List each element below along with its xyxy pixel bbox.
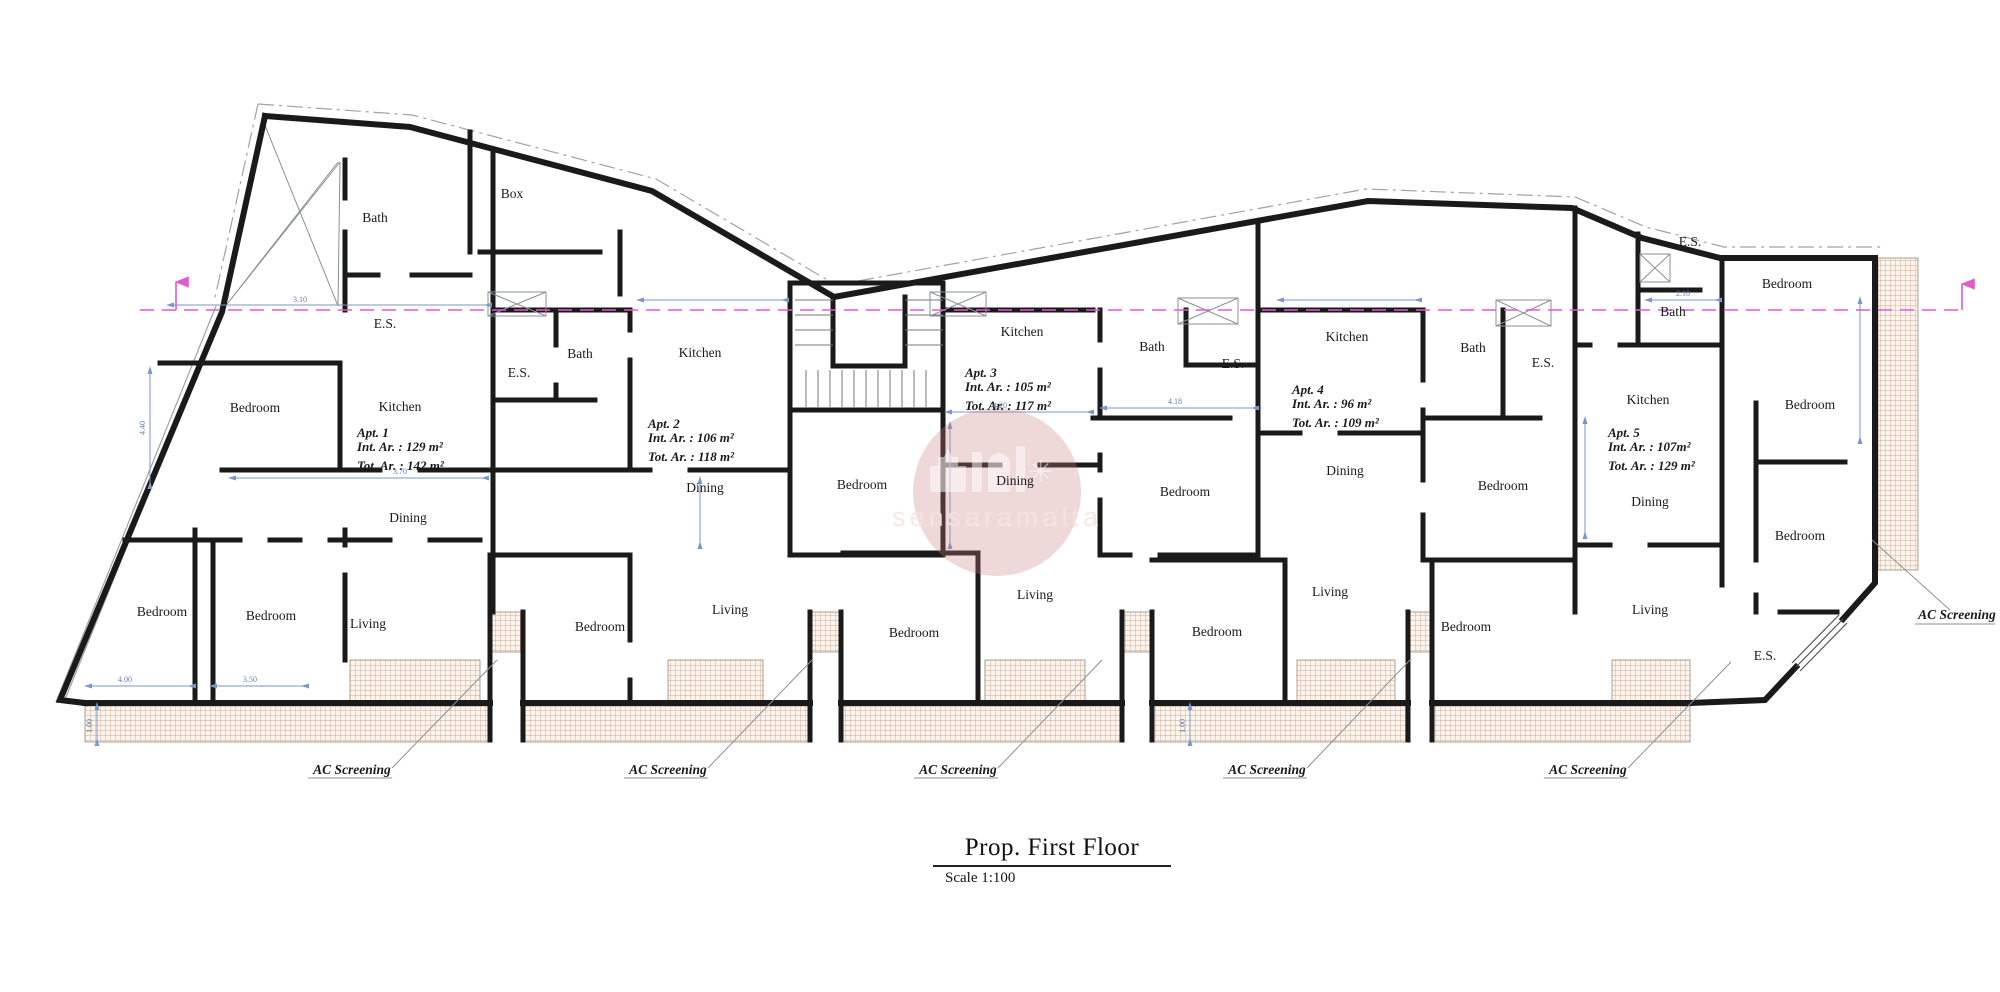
room-label: E.S. <box>1222 356 1245 371</box>
room-label: Living <box>1632 602 1668 617</box>
room-label: Dining <box>389 510 427 525</box>
room-label: Bedroom <box>1160 484 1211 499</box>
room-label: Bedroom <box>1785 397 1836 412</box>
room-label: Bath <box>567 346 593 361</box>
room-label: Bath <box>362 210 388 225</box>
room-label: Dining <box>996 473 1034 488</box>
apartment-info: Apt. 3Int. Ar. : 105 m²Tot. Ar. : 117 m² <box>964 365 1052 413</box>
shaft-x-boxes <box>488 254 1670 326</box>
dimension-label: 3.10 <box>293 295 307 304</box>
apartment-info: Apt. 4Int. Ar. : 96 m²Tot. Ar. : 109 m² <box>1291 382 1380 430</box>
room-label: Bath <box>1660 304 1686 319</box>
room-label: Kitchen <box>1326 329 1369 344</box>
ac-screening-label: AC Screening <box>1548 762 1627 777</box>
room-label: E.S. <box>374 316 397 331</box>
dimension-label: 2.10 <box>1676 289 1690 298</box>
dimension-labels: 3.104.204.183.704.003.502.104.401.001.00 <box>85 289 1690 733</box>
room-label: E.S. <box>1754 648 1777 663</box>
stair-treads <box>795 300 943 407</box>
dimension-label: 1.00 <box>1178 719 1187 733</box>
ac-screening-label: AC Screening <box>628 762 707 777</box>
watermark-text: sensaramalta <box>892 502 1102 532</box>
section-line <box>140 282 1966 310</box>
dimension-label: 3.70 <box>393 467 407 476</box>
room-label: Bedroom <box>837 477 888 492</box>
room-label: E.S. <box>1532 355 1555 370</box>
dimension-label: 4.20 <box>993 401 1007 410</box>
room-label: Kitchen <box>379 399 422 414</box>
room-label: Bedroom <box>230 400 281 415</box>
room-label: Living <box>1312 584 1348 599</box>
apartment-info: Apt. 1Int. Ar. : 129 m²Tot. Ar. : 142 m² <box>356 425 445 473</box>
dimension-label: 4.18 <box>1168 397 1182 406</box>
room-label: E.S. <box>1679 234 1702 249</box>
room-label: Kitchen <box>1627 392 1670 407</box>
dimension-label: 4.40 <box>138 421 147 435</box>
room-label: Dining <box>1631 494 1669 509</box>
ac-screening-label: AC Screening <box>312 762 391 777</box>
room-label: Dining <box>1326 463 1364 478</box>
apartment-info: Apt. 5Int. Ar. : 107m²Tot. Ar. : 129 m² <box>1607 425 1696 473</box>
diagonal-window-lines <box>1792 615 1847 671</box>
apartment-info: Apt. 2Int. Ar. : 106 m²Tot. Ar. : 118 m² <box>647 416 735 464</box>
dimension-label: 1.00 <box>85 719 94 733</box>
room-label: Kitchen <box>1001 324 1044 339</box>
room-label: Bedroom <box>1775 528 1826 543</box>
room-label: Bedroom <box>246 608 297 623</box>
room-label: Bath <box>1139 339 1165 354</box>
room-label: Bedroom <box>1478 478 1529 493</box>
dimension-label: 3.50 <box>243 675 257 684</box>
room-label: Living <box>1017 587 1053 602</box>
dimension-label: 4.00 <box>118 675 132 684</box>
room-label: Bedroom <box>1192 624 1243 639</box>
room-label: Box <box>501 186 524 201</box>
room-label: E.S. <box>508 365 531 380</box>
room-label: Bath <box>1460 340 1486 355</box>
room-label: Living <box>712 602 748 617</box>
ac-screening-label: AC Screening <box>1227 762 1306 777</box>
room-label: Bedroom <box>1762 276 1813 291</box>
room-label: Living <box>350 616 386 631</box>
room-label: Kitchen <box>679 345 722 360</box>
room-label: Bedroom <box>137 604 188 619</box>
room-label: Dining <box>686 480 724 495</box>
drawing-title: Prop. First Floor <box>933 834 1171 867</box>
room-label: Bedroom <box>1441 619 1492 634</box>
ac-screening-label: AC Screening <box>918 762 997 777</box>
floor-plan-canvas: ✳ sensaramalta BathBoxE.S.BedroomKitchen… <box>0 0 2000 992</box>
ac-screening-label: AC Screening <box>1917 607 1996 622</box>
title-block: Prop. First Floor Scale 1:100 <box>933 834 1171 887</box>
room-label: Bedroom <box>575 619 626 634</box>
drawing-scale: Scale 1:100 <box>933 867 1171 887</box>
room-label: Bedroom <box>889 625 940 640</box>
